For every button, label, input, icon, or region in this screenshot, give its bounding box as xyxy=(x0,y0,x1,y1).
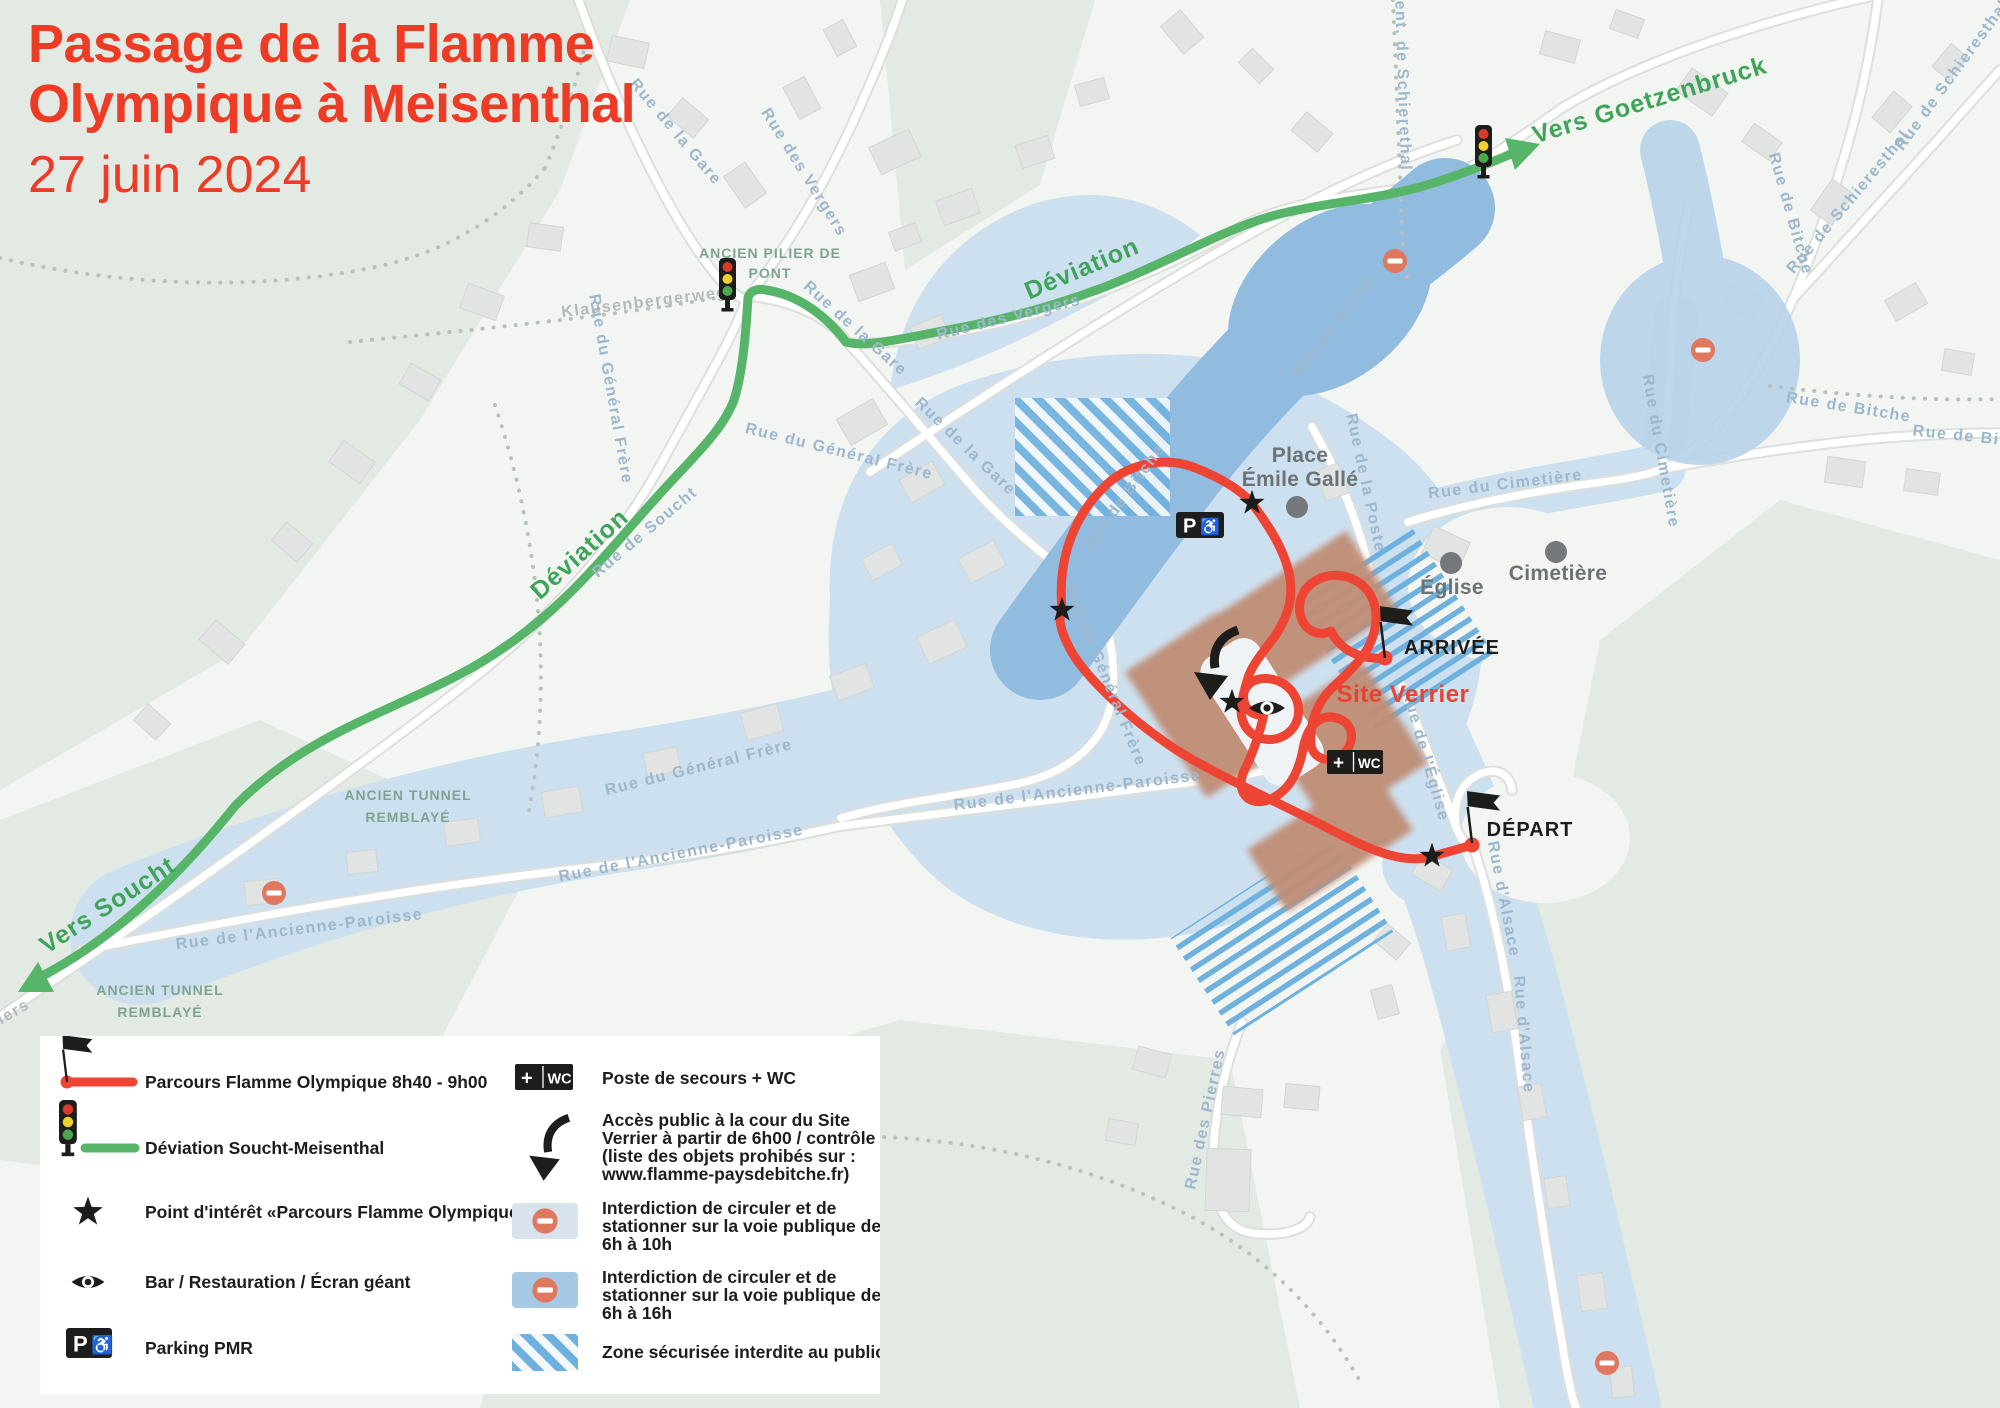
svg-text:www.flamme-paysdebitche.fr): www.flamme-paysdebitche.fr) xyxy=(601,1164,849,1184)
svg-text:Poste de secours + WC: Poste de secours + WC xyxy=(602,1068,796,1088)
svg-text:stationner sur la voie publiqu: stationner sur la voie publique de xyxy=(602,1216,880,1236)
svg-text:Point d'intérêt «Parcours Flam: Point d'intérêt «Parcours Flamme Olympiq… xyxy=(145,1202,528,1222)
ancien-tunnel-label: REMBLAYÉ xyxy=(117,1004,202,1020)
svg-text:Zone sécurisée interdite au pu: Zone sécurisée interdite au public xyxy=(602,1342,880,1362)
svg-text:WC: WC xyxy=(1358,756,1381,771)
no-entry-icon xyxy=(1383,249,1407,273)
svg-text:Bar / Restauration / Écran géa: Bar / Restauration / Écran géant xyxy=(145,1271,411,1292)
svg-text:stationner sur la voie publiqu: stationner sur la voie publique de xyxy=(602,1285,880,1305)
no-entry-icon xyxy=(262,881,286,905)
legend-item-point-interet: Point d'intérêt «Parcours Flamme Olympiq… xyxy=(73,1196,528,1224)
street-label: Klausenbergerweg xyxy=(560,284,728,321)
hatch-swatch xyxy=(512,1334,578,1371)
legend-item-zone: Zone sécurisée interdite au public xyxy=(512,1334,880,1371)
flag-icon xyxy=(62,1036,92,1082)
no-entry-icon xyxy=(532,1208,557,1233)
no-entry-icon xyxy=(1595,1351,1619,1375)
legend-item-bar: Bar / Restauration / Écran géant xyxy=(72,1271,411,1292)
poster-title: Passage de la Flamme Olympique à Meisent… xyxy=(28,14,635,205)
svg-text:Interdiction de circuler et de: Interdiction de circuler et de xyxy=(602,1267,837,1287)
ancien-tunnel-label: REMBLAYÉ xyxy=(365,809,450,825)
ancien-pilier-label: ANCIEN PILIER DE xyxy=(699,245,841,261)
title-date: 27 juin 2024 xyxy=(28,145,635,205)
legend-item-deviation: Déviation Soucht-Meisenthal xyxy=(59,1100,384,1158)
poster-canvas: Rue de la Gare Rue des Vergers Rue des V… xyxy=(0,0,2000,1408)
street-label: Rue de la Gare xyxy=(626,76,725,189)
parking-pmr-badge: P ♿ xyxy=(1176,512,1224,538)
poi-dot xyxy=(1286,496,1308,518)
poi-dot xyxy=(1440,552,1462,574)
street-label: Rue du Général Frère xyxy=(585,293,635,486)
legend-item-interdiction-10h: Interdiction de circuler et de stationne… xyxy=(512,1198,880,1254)
legend-item-parcours: Parcours Flamme Olympique 8h40 - 9h00 xyxy=(61,1036,488,1092)
poi-dot xyxy=(1545,541,1567,563)
star-icon xyxy=(73,1196,103,1224)
cimetiere-label: Cimetière xyxy=(1509,562,1607,585)
depart-label: DÉPART xyxy=(1487,818,1574,841)
site-verrier-label: Site Verrier xyxy=(1337,681,1470,708)
ancien-pilier-label: PONT xyxy=(749,265,792,281)
svg-text:Verrier à partir de 6h00 / con: Verrier à partir de 6h00 / contrôle xyxy=(602,1128,876,1148)
svg-text:Parking PMR: Parking PMR xyxy=(145,1338,253,1358)
legend-item-poste: + WC Poste de secours + WC xyxy=(515,1064,796,1090)
svg-text:6h à 16h: 6h à 16h xyxy=(602,1303,672,1323)
place-emile-galle-label: Émile Gallé xyxy=(1242,468,1359,491)
curved-arrow-icon xyxy=(529,1118,569,1181)
street-label: Rue de Bitche xyxy=(1912,422,2000,452)
ancien-tunnel-label: ANCIEN TUNNEL xyxy=(96,982,223,998)
traffic-light-icon xyxy=(719,258,736,312)
svg-text:+: + xyxy=(521,1068,533,1090)
svg-text:(liste des objets prohibés sur: (liste des objets prohibés sur : xyxy=(602,1146,856,1166)
svg-text:6h à 10h: 6h à 10h xyxy=(602,1234,672,1254)
first-aid-wc-icon: + WC xyxy=(515,1064,573,1090)
eglise-label: Église xyxy=(1420,576,1484,599)
street-label: Sent. de Schierethal xyxy=(1391,0,1414,172)
first-aid-wc-badge: + WC xyxy=(1327,750,1383,774)
legend-item-interdiction-16h: Interdiction de circuler et de stationne… xyxy=(512,1267,880,1323)
eye-icon xyxy=(72,1276,105,1288)
arrivee-label: ARRIVÉE xyxy=(1404,636,1500,659)
street-label: Rue de la Gare xyxy=(800,278,910,380)
svg-text:Parcours Flamme Olympique 8h40: Parcours Flamme Olympique 8h40 - 9h00 xyxy=(145,1072,488,1092)
svg-text:+: + xyxy=(1333,753,1344,774)
svg-text:Interdiction de circuler et de: Interdiction de circuler et de xyxy=(602,1198,837,1218)
svg-text:WC: WC xyxy=(548,1072,573,1088)
place-emile-galle-label: Place xyxy=(1272,444,1328,467)
traffic-light-icon xyxy=(59,1100,77,1156)
legend-item-parking: P ♿ Parking PMR xyxy=(66,1328,253,1358)
svg-text:♿: ♿ xyxy=(1200,517,1220,536)
svg-text:♿: ♿ xyxy=(91,1334,113,1355)
title-line1: Passage de la Flamme xyxy=(28,14,594,74)
legend-graphics: Parcours Flamme Olympique 8h40 - 9h00 Dé… xyxy=(40,1036,880,1394)
parking-pmr-icon: P ♿ xyxy=(66,1328,113,1358)
no-entry-icon xyxy=(532,1277,557,1302)
legend-item-acces: Accès public à la cour du Site Verrier à… xyxy=(529,1110,875,1184)
svg-text:P: P xyxy=(1183,516,1196,538)
title-line2: Olympique à Meisenthal xyxy=(28,74,635,134)
svg-text:Accès public à la cour du Site: Accès public à la cour du Site xyxy=(602,1110,850,1130)
svg-text:Déviation Soucht-Meisenthal: Déviation Soucht-Meisenthal xyxy=(145,1138,384,1158)
legend-panel: Parcours Flamme Olympique 8h40 - 9h00 Dé… xyxy=(40,1036,880,1394)
ancien-tunnel-label: ANCIEN TUNNEL xyxy=(344,787,471,803)
svg-text:P: P xyxy=(73,1332,88,1357)
no-entry-icon xyxy=(1691,338,1715,362)
